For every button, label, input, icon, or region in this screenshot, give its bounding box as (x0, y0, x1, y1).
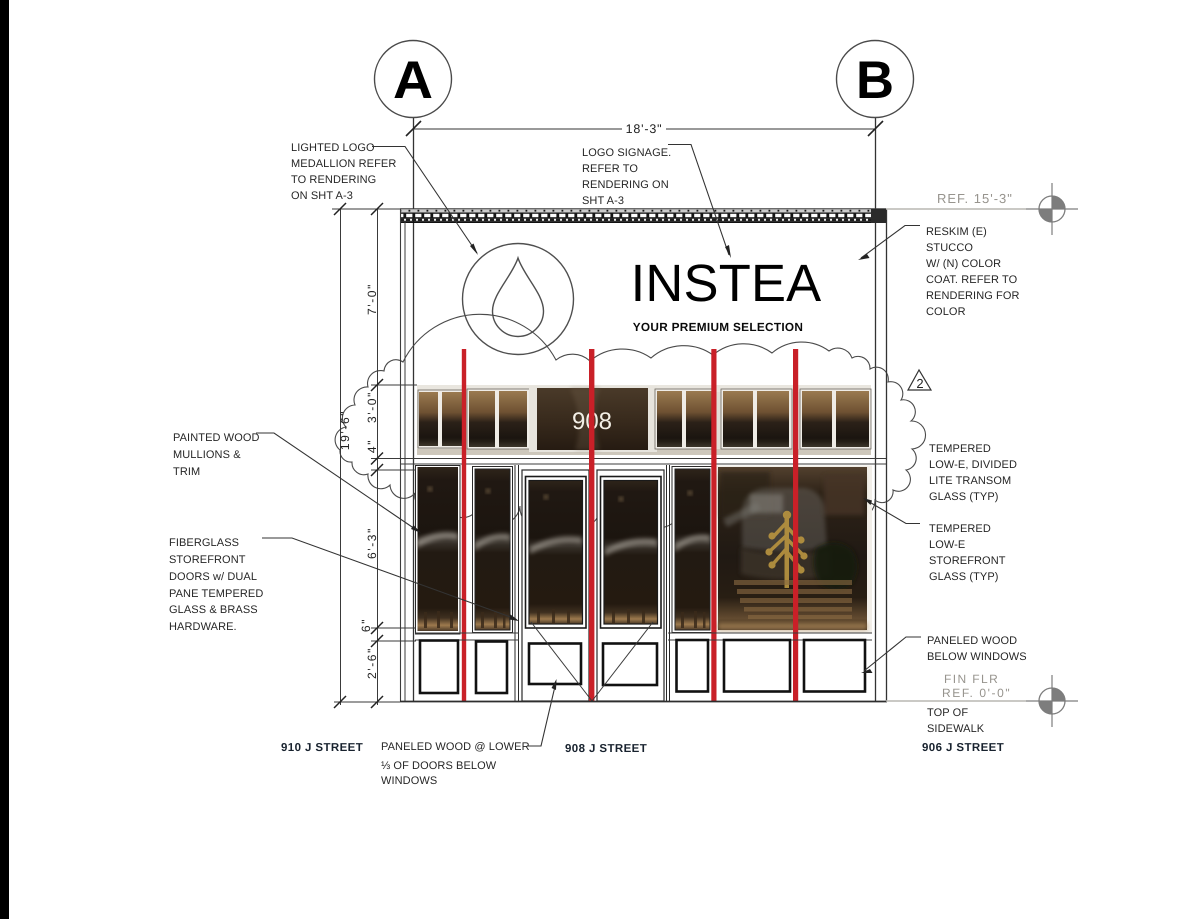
svg-text:REF. 0'-0": REF. 0'-0" (942, 686, 1011, 700)
svg-text:TO RENDERING: TO RENDERING (291, 174, 376, 186)
svg-text:PAINTED WOOD: PAINTED WOOD (173, 432, 260, 444)
svg-text:19'-6": 19'-6" (338, 410, 352, 450)
svg-text:INSTEA: INSTEA (631, 254, 822, 313)
svg-text:2: 2 (916, 376, 923, 391)
svg-text:MULLIONS &: MULLIONS & (173, 449, 241, 461)
svg-text:PANELED WOOD: PANELED WOOD (927, 635, 1017, 647)
svg-text:DOORS w/ DUAL: DOORS w/ DUAL (169, 571, 257, 583)
svg-text:B: B (856, 51, 894, 110)
svg-text:TEMPERED: TEMPERED (929, 523, 991, 535)
svg-text:RESKIM (E): RESKIM (E) (926, 226, 987, 238)
svg-text:910 J STREET: 910 J STREET (281, 742, 363, 754)
svg-text:TEMPERED: TEMPERED (929, 443, 991, 455)
svg-text:BELOW WINDOWS: BELOW WINDOWS (927, 651, 1027, 663)
svg-text:LITE TRANSOM: LITE TRANSOM (929, 475, 1011, 487)
svg-text:GLASS & BRASS: GLASS & BRASS (169, 604, 258, 616)
svg-text:6": 6" (359, 618, 373, 632)
svg-text:REFER TO: REFER TO (582, 163, 638, 175)
svg-text:FIN FLR: FIN FLR (944, 672, 999, 686)
svg-text:PANE TEMPERED: PANE TEMPERED (169, 588, 263, 600)
svg-text:YOUR PREMIUM SELECTION: YOUR PREMIUM SELECTION (633, 320, 803, 334)
svg-text:W/ (N) COLOR: W/ (N) COLOR (926, 258, 1001, 270)
svg-text:TRIM: TRIM (173, 466, 200, 478)
svg-text:LOW-E, DIVIDED: LOW-E, DIVIDED (929, 459, 1017, 471)
svg-text:LOW-E: LOW-E (929, 539, 965, 551)
svg-text:PANELED WOOD @ LOWER: PANELED WOOD @ LOWER (381, 741, 530, 753)
svg-text:TOP OF: TOP OF (927, 707, 968, 719)
svg-text:MEDALLION REFER: MEDALLION REFER (291, 158, 396, 170)
svg-text:RENDERING ON: RENDERING ON (582, 179, 669, 191)
svg-text:18'-3": 18'-3" (626, 122, 663, 136)
svg-text:COLOR: COLOR (926, 306, 966, 318)
svg-text:ON SHT A-3: ON SHT A-3 (291, 190, 353, 202)
svg-text:STOREFRONT: STOREFRONT (929, 555, 1006, 567)
svg-text:6'-3": 6'-3" (365, 527, 379, 559)
svg-text:LIGHTED LOGO: LIGHTED LOGO (291, 142, 375, 154)
svg-text:WINDOWS: WINDOWS (381, 775, 437, 787)
svg-text:⅓ OF DOORS BELOW: ⅓ OF DOORS BELOW (381, 760, 497, 772)
svg-text:A: A (393, 51, 433, 110)
svg-text:2'-6": 2'-6" (365, 647, 379, 679)
svg-text:4": 4" (365, 439, 379, 453)
svg-text:908 J STREET: 908 J STREET (565, 743, 647, 755)
svg-text:LOGO SIGNAGE.: LOGO SIGNAGE. (582, 147, 671, 159)
svg-text:COAT. REFER TO: COAT. REFER TO (926, 274, 1018, 286)
svg-text:STOREFRONT: STOREFRONT (169, 554, 246, 566)
svg-text:RENDERING FOR: RENDERING FOR (926, 290, 1020, 302)
svg-text:REF. 15'-3": REF. 15'-3" (937, 191, 1013, 206)
svg-text:STUCCO: STUCCO (926, 242, 973, 254)
svg-text:7'-0": 7'-0" (365, 283, 379, 315)
svg-text:HARDWARE.: HARDWARE. (169, 621, 237, 633)
svg-text:906 J STREET: 906 J STREET (922, 742, 1004, 754)
svg-text:GLASS (TYP): GLASS (TYP) (929, 571, 999, 583)
svg-text:SHT A-3: SHT A-3 (582, 195, 624, 207)
svg-text:3'-0": 3'-0" (365, 391, 379, 423)
svg-text:GLASS (TYP): GLASS (TYP) (929, 491, 999, 503)
svg-text:SIDEWALK: SIDEWALK (927, 723, 985, 735)
svg-text:FIBERGLASS: FIBERGLASS (169, 537, 239, 549)
